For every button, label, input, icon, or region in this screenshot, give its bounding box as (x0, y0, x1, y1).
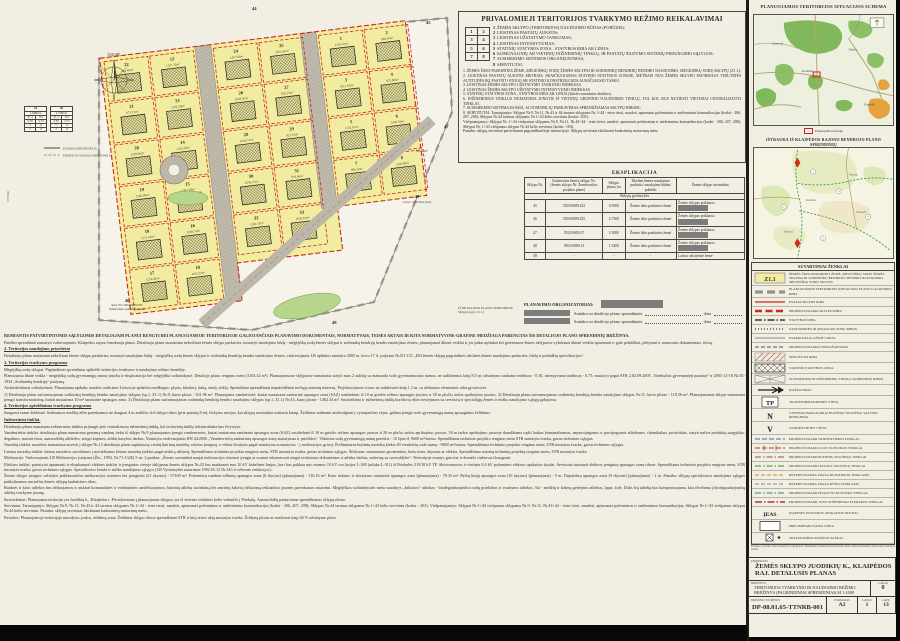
grid-number: 6 (478, 44, 490, 52)
legend-label: SKLYPO RIBOS POSŪKIO TAŠKAI (788, 535, 845, 541)
v-legend-icon: V (752, 422, 788, 434)
graydash-legend-icon (752, 480, 788, 488)
table-cell: 45 (525, 200, 546, 213)
legend-label: ĮVAŽIAVIMAS (788, 387, 813, 393)
legend-label: TRANSFORMATORINĖS VIETA (788, 399, 840, 405)
grid-number: 5 (466, 44, 478, 52)
section-heading: 4. Teritorijos apželdinimo tvarkymo prog… (4, 403, 745, 408)
n-legend-icon: N (752, 409, 788, 421)
legend-item: VVANDENVIETĖS VIETA (752, 422, 894, 435)
grid-number: 1 (466, 28, 478, 36)
plan-overlay-tables: 441.0486 haZ1.18.50.300.755678462.7300 h… (0, 0, 455, 332)
table-cell: Žemės ūkio paskirties žemė (625, 239, 676, 252)
body-paragraph: Elektros tinklai: pastatytai aptarnauti … (4, 462, 745, 472)
legend-item: PLANUOJAMOS TERITORIJOS (DETALIOJO PLANO… (752, 286, 894, 297)
legend-item: PROJEKTUOJAMI VANDENTIEKIO TINKLAI (752, 435, 894, 444)
legend-item: PRELIMINARI NAMO VIETA (752, 520, 894, 533)
body-paragraph: 1) Detaliuoju planu suformuojamas sodini… (4, 392, 745, 402)
requirement-note: 2. LEISTINAS PASTATŲ AUKŠTIS METRAIS, SK… (463, 74, 741, 83)
table-row: 475552/0003:371.5000Žemės ūkio paskirtie… (525, 226, 745, 239)
redacted-name (524, 318, 570, 324)
legend-label: PRELIMINARI NAMO VIETA (788, 523, 836, 529)
plan-solutions-note: IŠ DETALIOJO PLANO SPRENDINIŲSklypai (pg… (458, 306, 518, 315)
date-label: data (704, 311, 711, 316)
body-paragraph: Planuojama ūkinė veikla - mėgėjiškų sodų… (4, 373, 745, 383)
redacted-name (524, 310, 570, 316)
legend-label: PROJEKTUOJAMAS PRIVAŽIAVIMAS (788, 344, 850, 350)
agreement-line: Sutinku su detaliojo plano sprendiniais (574, 319, 642, 324)
table-cell: - (602, 253, 625, 260)
body-paragraph: Pateikti sprendiniai numatyti vadovaujan… (4, 340, 745, 345)
table-cell: 1.5200 (602, 239, 625, 252)
requirement-note: Viešpataujantys: Sklypai Nr. 1÷44 viešpa… (463, 120, 741, 129)
legend-item: ESAMO KELIO AŠINĖ LINIJA (752, 334, 894, 343)
legend-item: PROJEKTUOJAMAS PRIVAŽIAVIMAS (752, 343, 894, 352)
legend-label: SERVITUTO RIBA (788, 354, 819, 360)
table-cell: 1.5000 (602, 226, 625, 239)
organizers-label: PLANAVIMO ORGANIZATORIAI: (524, 302, 593, 307)
situation-map-caption: Planuojama teritorija (753, 128, 894, 134)
blue-legend-icon (752, 435, 788, 443)
explication-header: Žemės sklypo savininkas (676, 178, 744, 194)
redacted-owner (678, 219, 708, 225)
master-plan-extract-map: 1 3 2 5 4 JuodikiaiVenckaiPriekulėDrukia… (753, 147, 894, 259)
table-row: 49---Laisva valstybinė žemė (525, 253, 745, 260)
situation-schema-title: PLANUOJAMOS TERITORIJOS SITUACIJOS SCHEM… (753, 4, 894, 9)
scan-edge-bottom (0, 625, 747, 641)
sheet-fold-crease (746, 0, 749, 641)
body-paragraph: Žemės sklype įrengtos valstybei priklaus… (4, 473, 745, 483)
dash-legend-icon (752, 343, 788, 351)
requirement-note: 6. INŽINERINIUS TINKLUS NUMATOMA JUNGTIS… (463, 97, 741, 106)
owner-cell: Žemės sklypas priklauso (676, 213, 744, 226)
legend-label: PLANUOJAMOS TERITORIJOS (DETALIOJO PLANO… (788, 286, 894, 296)
grid-number: 8 (478, 52, 490, 60)
place-label: Drukiai (784, 229, 793, 233)
explication-header: Sklypo Nr. (525, 178, 546, 194)
legend-item: ESAMA SKLYPO RIBA (752, 298, 894, 307)
body-paragraph: Lietaus nuotekų tinklai: lietaus nuoteko… (4, 449, 745, 454)
redacted-owner (678, 245, 708, 251)
legend-item: PROJEKTUOJAMI 0.4 kV ELEKTROS TINKLAI (752, 444, 894, 453)
legend-label: ĮVADINĖS ELEKTROS APSKAITOS SKYDAI (788, 510, 860, 516)
owner-cell: Žemės sklypas priklauso (676, 239, 744, 252)
section-heading: 2. Teritorijos naudojimo prioritetai (4, 346, 745, 351)
legend-item: ĮVAŽIAVIMAS (752, 385, 894, 396)
table-cell: 5552/0003:37 (545, 226, 602, 239)
posukis-legend-icon (752, 533, 788, 543)
table-cell: Žemės ūkio paskirties žemė (625, 226, 676, 239)
legend-box: SUTARTINIAI ŽENKLAI Z1.1ŽEMĖS ŪKIO PASKI… (751, 262, 895, 545)
legend-label: PROJEKTUOJAMI BUITINIŲ NUOTEKŲ TINKLAI (788, 454, 868, 460)
cadastre-label: 46Kad. Nr. 5503/0009:235Žemės ūkio paski… (92, 298, 162, 311)
format-value: A2 (827, 602, 857, 608)
body-paragraph: Pastabos: Planuojamoje teritorijoje nuro… (4, 515, 745, 520)
legend-label: SUSISIEKIMO IR INŽINERINIŲ TINKLŲ KORIDO… (788, 376, 885, 382)
z11-legend-icon: Z1.1 (752, 272, 788, 284)
mandatory-requirements-box: PRIVALOMIEJI TERITORIJOS TVARKYMO REŽIMO… (458, 11, 746, 163)
redacted-owner (678, 232, 708, 238)
orange-legend-icon (752, 471, 788, 479)
table-cell: Žemės ūkio paskirties žemė (625, 200, 676, 213)
explication-table-section: EKSPLIKACIJA Sklypo Nr.Kadastrinis žemės… (524, 170, 745, 260)
grid-number: 7 (466, 52, 478, 60)
requirements-title: PRIVALOMIEJI TERITORIJOS TVARKYMO REŽIMO… (463, 15, 741, 23)
place-label: Juodikiai (805, 198, 816, 202)
sheet-value: 1 (858, 602, 876, 608)
legend-item: SANITARINĖS IR APSAUGOS ZONŲ RIBOS (752, 325, 894, 334)
table-cell: 48 (525, 239, 546, 252)
table-cell: 0.5900 (602, 200, 625, 213)
grid-number: 2 (478, 28, 490, 36)
legend-item: PROJEKTUOJAMI 10 kV POŽEMINIAI ELEKTROS … (752, 498, 894, 507)
legend-item: NVIETINIAI BIOLOGINIAI BUITINIŲ NUOTEKŲ … (752, 409, 894, 422)
table-row: 485503/0009:131.5200Žemės ūkio paskirtie… (525, 239, 745, 252)
situation-schema-map: JuodikiaiSvencelėPriekulėDituva (753, 14, 894, 126)
scan-edge-right (896, 0, 900, 641)
red10-legend-icon (752, 498, 788, 506)
legend-label: PROJEKTUOJAMI LIETAUS NUOTEKŲ TINKLAI (788, 463, 867, 469)
legend-item: TPTRANSFORMATORINĖS VIETA (752, 396, 894, 409)
body-paragraph: Saugomi esami želdiniai. Sodinamos medži… (4, 410, 745, 415)
table-cell: 2.7300 (602, 213, 625, 226)
legend-item: SERVITUTO RIBA (752, 352, 894, 363)
table-cell: 5503/0009:13 (545, 239, 602, 252)
table-cell: - (545, 253, 602, 260)
place-label: Svencelė (772, 41, 784, 45)
hatch-legend-icon (752, 352, 788, 362)
dotted-legend-icon (752, 325, 788, 333)
body-paragraph: Melioracija: Vadovaujantis LR Melioracij… (4, 455, 745, 460)
svg-text:ĮEAS: ĮEAS (763, 512, 776, 518)
legend-item: REZERVUOJAMA TRASA DUJOTIEKIO TINKLAMS (752, 471, 894, 480)
body-paragraph: Detaliuoju planu nustatoma nekeičiant že… (4, 353, 745, 358)
owner-cell: Laisva valstybinė žemė (676, 253, 744, 260)
ieas-legend-icon: ĮEAS (752, 507, 788, 519)
territory-swatch (804, 128, 813, 134)
legend-label: REZERVUOJAMA TRASA RYŠIŲ TINKLAMS (788, 481, 861, 487)
table-row: 455503/0009:2320.5900Žemės ūkio paskirti… (525, 200, 745, 213)
arrow-legend-icon (752, 385, 788, 395)
body-paragraph: Mėgėjiškų sodų sklypai. Pagrindiniai spr… (4, 367, 745, 372)
legend-item: ĮEASĮVADINĖS ELEKTROS APSKAITOS SKYDAI (752, 507, 894, 520)
xhatch-legend-icon (752, 374, 788, 384)
grid-number: 3 (466, 36, 478, 44)
legend-label: STATYBOS RIBA (788, 317, 818, 323)
place-label: Juodikiai (801, 69, 813, 73)
legend-label: VIETINIAI BIOLOGINIAI BUITINIŲ NUOTEKŲ V… (788, 410, 894, 420)
grid-number: 4 (478, 36, 490, 44)
owner-cell: Žemės sklypas priklauso (676, 200, 744, 213)
scan-edge-bottom-right (749, 637, 900, 641)
legend-item: SUSISIEKIMO IR INŽINERINIŲ TINKLŲ KORIDO… (752, 374, 894, 385)
table-cell: - (625, 253, 676, 260)
body-paragraph: Architektūriniai reikalavimai: Planuojam… (4, 385, 745, 390)
project-name: ŽEMĖS SKLYPO JUODIKIŲ K., KLAIPĖDOS RAJ.… (749, 563, 895, 580)
table-cell: 5503/0009:232 (545, 200, 602, 213)
servitude-note: Pastaba: servituto ribos nustatytos sąly… (751, 545, 895, 552)
legend-item: SKLYPO RIBOS POSŪKIO TAŠKAI (752, 533, 894, 544)
legend-label: PROJEKTUOJAMI 0.4 kV ELEKTROS TINKLAI (788, 445, 864, 451)
body-paragraph: Servitutai: Tarnaujantys: Sklypai Nr.9, … (4, 503, 745, 513)
explication-header: Tikslinė žemės naudojimo paskirtis/ naud… (625, 178, 676, 194)
legend-item: REZERVUOJAMA TRASA RYŠIŲ TINKLAMS (752, 480, 894, 489)
drawing-number: DP-08.01.65-TTNRB-001 (749, 602, 826, 613)
drawing-name: TERITORIJOS TVARKYMO IR NAUDOJIMO REŽIMO… (749, 585, 870, 596)
legend-label: REZERVUOJAMA TRASA DUJOTIEKIO TINKLAMS (788, 472, 871, 478)
table-cell: 49 (525, 253, 546, 260)
plot-requirements-stamp: 441.0486 haZ1.18.50.300.755678 (24, 106, 47, 132)
date-label: data (704, 319, 711, 324)
laida-value: 0 (871, 585, 895, 591)
table-cell: 46 (525, 213, 546, 226)
legend-item: STATINIŲ STATYBOS ZONA (752, 363, 894, 374)
redacted-owner (678, 205, 708, 211)
body-paragraph: Detaliuoju planu numatoma inžinerinius t… (4, 424, 745, 429)
place-label: Priekulė (864, 102, 875, 106)
requirement-note: 8. SERVITUTAI: Tarnaujantys: Sklypai Nr.… (463, 111, 741, 120)
place-label: Venckai (849, 173, 859, 177)
requirements-list: 1ŽEMĖS SKLYPO (TERITORIJOS) NAUDOJIMO BŪ… (493, 25, 741, 67)
legend-label: ESAMA SKLYPO RIBA (788, 299, 826, 305)
planning-organizers-section: PLANAVIMO ORGANIZATORIAI: Sutinku su det… (524, 300, 745, 326)
reddash-legend-icon (752, 307, 788, 315)
body-paragraph: Susisiekimas: Planuojama teritorija yra … (4, 497, 745, 502)
namas-legend-icon (752, 520, 788, 532)
legend-item: PROJEKTUOJAMI LIETAUS NUOTEKŲ TINKLAI (752, 462, 894, 471)
svg-text:N: N (767, 412, 773, 421)
legend-label: PROJEKTUOJAMI IŠVALYTŲ NUOTEKŲ TINKLAI (788, 490, 870, 496)
legend-item: PROJEKTUOJAMA SKLYPO RIBA (752, 307, 894, 316)
green-legend-icon (752, 462, 788, 470)
table-cell: 47 (525, 226, 546, 239)
redline-legend-icon (752, 298, 788, 306)
legend-label: VANDENVIETĖS VIETA (788, 425, 828, 431)
brown-legend-icon (752, 453, 788, 461)
legend-label: STATINIŲ STATYBOS ZONA (788, 365, 835, 371)
legend-label: PROJEKTUOJAMI 10 kV POŽEMINIAI ELEKTROS … (788, 499, 885, 505)
table-cell: 5503/0009:235 (545, 213, 602, 226)
requirement-item: 8SERVITUTAI. (493, 62, 741, 67)
master-plan-extract-title: IŠTRAUKA IŠ KLAIPĖDOS RAJONO BENDROJO PL… (753, 137, 894, 147)
svg-text:Z1.1: Z1.1 (764, 277, 776, 283)
sheets-total-value: 13 (877, 602, 895, 608)
legend-label: PROJEKTUOJAMI VANDENTIEKIO TINKLAI (788, 436, 861, 442)
cross-legend-icon (752, 363, 788, 373)
requirement-note: Pastaba: sklypų servitutai patvirtinami … (463, 129, 741, 134)
teal-legend-icon (752, 489, 788, 497)
legend-item: STATYBOS RIBA (752, 316, 894, 325)
thin-legend-icon (752, 334, 788, 342)
agreement-line: Sutinku su detaliojo plano sprendiniais (574, 311, 642, 316)
body-paragraph: Nuotekų tinklai: nuotekas numatoma nuves… (4, 442, 745, 447)
legend-label: ESAMO KELIO AŠINĖ LINIJA (788, 335, 837, 341)
table-cell: Žemės ūkio paskirties žemė (625, 213, 676, 226)
table-row: 465503/0009:2352.7300Žemės ūkio paskirti… (525, 213, 745, 226)
legend-label: SANITARINĖS IR APSAUGOS ZONŲ RIBOS (788, 326, 859, 332)
plot-requirements-stamp: 462.7300 haZ1.18.50.300.755678 (50, 106, 73, 132)
tp-legend-icon: TP (752, 396, 788, 408)
svg-text:TP: TP (766, 400, 774, 407)
explication-header: Sklypo plotas, ha (602, 178, 625, 194)
plan-solutions-text: REMIANTIS PATVIRTINTOMIS SĄLYGOMIS DETAL… (4, 333, 745, 623)
explication-header: Kadastrinis žemės sklypo Nr. (žemės skly… (545, 178, 602, 194)
red04-legend-icon (752, 444, 788, 452)
owner-cell: Žemės sklypas priklauso (676, 226, 744, 239)
grayline-legend-icon (752, 288, 788, 296)
section-heading: Inžineriniai tinklai. (4, 417, 745, 422)
legend-item: PROJEKTUOJAMI BUITINIŲ NUOTEKŲ TINKLAI (752, 453, 894, 462)
explication-title: EKSPLIKACIJA (524, 170, 745, 176)
body-paragraph: Vandentiekio tinklai: detaliuoju planu n… (4, 430, 745, 440)
place-label: Priekulė (856, 210, 866, 214)
body-paragraph: Buitinės ir kitos atliekos bus rūšiuojam… (4, 485, 745, 495)
requirements-number-grid: 12345678 (465, 27, 490, 61)
requirements-notes: 1. ŽEMĖS ŪKIO PASKIRTIES ŽEMĖ, MĖGĖJIŠKŲ… (463, 69, 741, 134)
place-label: Dituva (849, 47, 858, 51)
title-block: PROJEKTAS ŽEMĖS SKLYPO JUODIKIŲ K., KLAI… (748, 557, 896, 614)
legend-label: PROJEKTUOJAMA SKLYPO RIBA (788, 308, 844, 314)
dashdot-legend-icon (752, 316, 788, 324)
scanned-detail-plan-document: 22904.48m²21875.21m²201259.66m²191266.09… (0, 0, 900, 641)
explication-table: Sklypo Nr.Kadastrinis žemės sklypo Nr. (… (524, 177, 745, 260)
section-heading: 3. Teritorijos tvarkymo programa (4, 360, 745, 365)
svg-text:V: V (767, 425, 773, 434)
legend-title: SUTARTINIAI ŽENKLAI (752, 263, 894, 271)
legend-item: Z1.1ŽEMĖS ŪKIO PASKIRTIES ŽEMĖ, MĖGĖJIŠK… (752, 271, 894, 286)
body-paragraph: REMIANTIS PATVIRTINTOMIS SĄLYGOMIS DETAL… (4, 333, 745, 338)
legend-label: ŽEMĖS ŪKIO PASKIRTIES ŽEMĖ, MĖGĖJIŠKŲ SO… (788, 271, 894, 285)
redacted-name (601, 300, 663, 308)
legend-item: PROJEKTUOJAMI IŠVALYTŲ NUOTEKŲ TINKLAI (752, 489, 894, 498)
